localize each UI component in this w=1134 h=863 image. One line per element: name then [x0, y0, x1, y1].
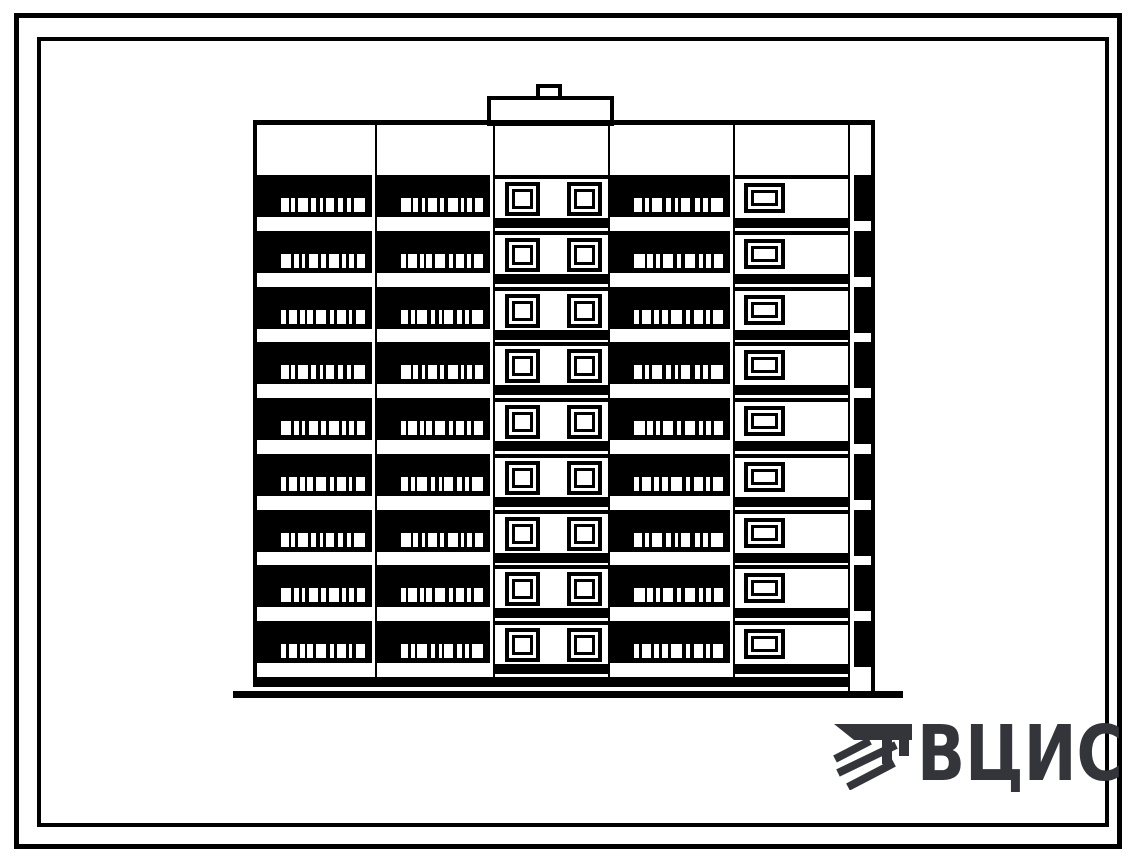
railing-dash	[435, 421, 445, 435]
railing-dash	[685, 254, 696, 268]
stairwell-window	[567, 517, 602, 551]
railing-dash	[449, 254, 453, 268]
floor-slab-band	[495, 664, 608, 674]
railing-dash	[694, 477, 703, 491]
balcony-band	[257, 342, 372, 384]
railing-dash	[465, 644, 469, 658]
window-sash	[751, 246, 778, 262]
window-sash	[751, 413, 778, 429]
floor-slab-band	[735, 274, 848, 284]
railing-dash	[329, 254, 339, 268]
floor-9-balcony-left	[257, 175, 375, 231]
railing-dash	[321, 254, 325, 268]
railing-dash	[681, 365, 690, 379]
railing-dash	[671, 310, 682, 324]
railing-dash	[448, 533, 458, 547]
railing-dash	[439, 644, 442, 658]
railing-dash	[467, 365, 472, 379]
railing-dash	[281, 254, 291, 268]
attic-band	[850, 125, 871, 175]
stairwell-window	[505, 572, 540, 606]
railing-dash	[426, 421, 432, 435]
balcony-railing	[281, 421, 365, 435]
floor-slab-band	[735, 330, 848, 340]
railing-dash	[294, 421, 299, 435]
railing-dash	[699, 421, 703, 435]
railing-dash	[401, 254, 406, 268]
balcony-railing	[634, 310, 723, 324]
floor-8-end-wall	[850, 231, 871, 287]
railing-dash	[677, 421, 681, 435]
floor-7-balcony-3	[610, 287, 733, 343]
floor-2-balcony-left	[257, 565, 375, 621]
railing-dash	[714, 254, 723, 268]
railing-dash	[711, 198, 723, 212]
balcony-railing	[401, 477, 483, 491]
balcony-band	[610, 454, 730, 496]
end-wall-panel	[854, 342, 871, 388]
railing-dash	[457, 310, 462, 324]
railing-dash	[642, 310, 651, 324]
stairwell-window	[567, 182, 602, 216]
building-elevation	[253, 120, 875, 687]
window-sash	[574, 356, 595, 376]
railing-dash	[677, 588, 681, 602]
railing-dash	[656, 254, 660, 268]
window-sash	[574, 579, 595, 599]
balcony-railing	[281, 310, 365, 324]
railing-dash	[347, 365, 351, 379]
floor-stack	[495, 175, 608, 677]
balcony-railing	[281, 533, 365, 547]
floor-2-wall	[735, 565, 848, 621]
floor-slab-line	[735, 175, 848, 179]
floor-slab-band	[735, 218, 848, 228]
floor-stack	[257, 175, 375, 677]
balcony-railing	[401, 533, 483, 547]
stairwell-window	[505, 405, 540, 439]
end-wall-panel	[854, 510, 871, 556]
railing-dash	[440, 198, 444, 212]
balcony-railing	[401, 588, 483, 602]
railing-dash	[431, 477, 436, 491]
wall-window	[744, 295, 785, 325]
railing-dash	[663, 254, 673, 268]
floor-slab-line	[735, 231, 848, 235]
floor-8-balcony-3	[610, 231, 733, 287]
window-sash	[512, 189, 533, 209]
railing-dash	[467, 254, 470, 268]
railing-dash	[413, 198, 418, 212]
section-wall	[733, 125, 848, 677]
floor-slab-band	[735, 553, 848, 563]
balcony-band	[257, 231, 372, 273]
railing-dash	[281, 421, 291, 435]
railing-dash	[426, 588, 432, 602]
railing-dash	[666, 365, 671, 379]
railing-dash	[656, 421, 660, 435]
end-wall-panel	[854, 454, 871, 500]
railing-dash	[330, 310, 334, 324]
railing-dash	[411, 310, 415, 324]
railing-dash	[281, 477, 286, 491]
floor-4-wall	[735, 454, 848, 510]
railing-dash	[439, 477, 442, 491]
balcony-band	[377, 342, 490, 384]
wall-window	[744, 573, 785, 603]
floor-8-balcony-left	[257, 231, 375, 287]
railing-dash	[645, 533, 649, 547]
stairwell-window	[567, 405, 602, 439]
railing-dash	[307, 477, 313, 491]
railing-dash	[321, 421, 325, 435]
balcony-band	[377, 398, 490, 440]
railing-dash	[294, 588, 299, 602]
railing-dash	[456, 588, 464, 602]
railing-dash	[281, 310, 286, 324]
floor-slab-band	[495, 497, 608, 507]
window-sash	[512, 412, 533, 432]
balcony-band	[377, 510, 490, 552]
railing-dash	[681, 533, 690, 547]
balcony-band	[377, 231, 490, 273]
railing-dash	[472, 644, 483, 658]
railing-dash	[357, 421, 365, 435]
stairwell-window	[567, 628, 602, 662]
railing-dash	[338, 365, 343, 379]
railing-dash	[474, 421, 483, 435]
railing-dash	[713, 644, 723, 658]
railing-dash	[329, 421, 339, 435]
attic-band	[735, 125, 848, 175]
floor-slab-band	[735, 497, 848, 507]
window-sash	[512, 635, 533, 655]
railing-dash	[686, 644, 690, 658]
railing-dash	[291, 365, 295, 379]
railing-dash	[316, 477, 326, 491]
railing-dash	[677, 254, 681, 268]
floor-slab-band	[735, 608, 848, 618]
railing-dash	[663, 421, 673, 435]
railing-dash	[686, 310, 690, 324]
railing-dash	[347, 198, 351, 212]
floor-slab-band	[495, 274, 608, 284]
end-wall-panel	[854, 175, 871, 221]
railing-dash	[431, 644, 436, 658]
railing-dash	[654, 644, 658, 658]
floor-4-stairwell	[495, 454, 608, 510]
railing-dash	[662, 644, 668, 658]
section-stairwell	[493, 125, 608, 677]
floor-slab-line	[735, 565, 848, 569]
railing-dash	[663, 588, 673, 602]
floor-stack	[610, 175, 733, 677]
railing-dash	[461, 533, 464, 547]
railing-dash	[289, 477, 297, 491]
floor-slab-line	[735, 454, 848, 458]
balcony-railing	[634, 533, 723, 547]
floor-9-end-wall	[850, 175, 871, 231]
railing-dash	[467, 588, 470, 602]
balcony-band	[610, 398, 730, 440]
floor-6-stairwell	[495, 342, 608, 398]
balcony-band	[377, 175, 490, 217]
attic-band	[377, 125, 493, 175]
railing-dash	[316, 644, 326, 658]
railing-dash	[695, 198, 700, 212]
window-sash	[751, 636, 778, 652]
railing-dash	[647, 421, 652, 435]
railing-dash	[428, 198, 437, 212]
railing-dash	[307, 310, 313, 324]
railing-dash	[431, 310, 436, 324]
railing-dash	[634, 254, 645, 268]
railing-dash	[428, 533, 437, 547]
railing-dash	[472, 310, 483, 324]
railing-dash	[337, 644, 345, 658]
window-sash	[512, 245, 533, 265]
railing-dash	[444, 644, 452, 658]
railing-dash	[326, 198, 334, 212]
railing-dash	[435, 588, 445, 602]
railing-dash	[309, 588, 318, 602]
balcony-railing	[401, 198, 483, 212]
railing-dash	[448, 365, 458, 379]
railing-dash	[307, 644, 313, 658]
end-wall-panel	[854, 231, 871, 277]
floor-stack	[850, 175, 871, 677]
floor-3-end-wall	[850, 510, 871, 566]
floor-5-wall	[735, 398, 848, 454]
window-sash	[574, 301, 595, 321]
railing-dash	[472, 477, 483, 491]
railing-dash	[444, 477, 452, 491]
railing-dash	[711, 365, 723, 379]
balcony-band	[257, 565, 372, 607]
publisher-logo: ВЦИС	[831, 720, 1134, 790]
stairwell-window	[567, 572, 602, 606]
wall-window	[744, 239, 785, 269]
railing-dash	[281, 644, 286, 658]
balcony-band	[610, 287, 730, 329]
railing-dash	[675, 198, 679, 212]
railing-dash	[444, 310, 452, 324]
stairwell-window	[505, 182, 540, 216]
balcony-railing	[281, 644, 365, 658]
floor-slab-band	[495, 441, 608, 451]
section-balcony-left	[257, 125, 375, 677]
floor-4-end-wall	[850, 454, 871, 510]
floor-3-wall	[735, 510, 848, 566]
floor-6-end-wall	[850, 342, 871, 398]
balcony-band	[610, 175, 730, 217]
railing-dash	[647, 588, 652, 602]
wall-window	[744, 183, 785, 213]
railing-dash	[291, 533, 295, 547]
stairwell-window	[567, 294, 602, 328]
railing-dash	[338, 198, 343, 212]
railing-dash	[457, 477, 462, 491]
railing-dash	[634, 198, 642, 212]
floor-8-stairwell	[495, 231, 608, 287]
railing-dash	[309, 254, 318, 268]
stairwell-window	[505, 628, 540, 662]
railing-dash	[714, 588, 723, 602]
railing-dash	[300, 310, 304, 324]
floor-7-stairwell	[495, 287, 608, 343]
floor-4-balcony-3	[610, 454, 733, 510]
balcony-railing	[401, 254, 483, 268]
wall-window	[744, 518, 785, 548]
floor-1-wall	[735, 621, 848, 677]
railing-dash	[475, 365, 483, 379]
railing-dash	[634, 421, 645, 435]
railing-dash	[413, 533, 418, 547]
floor-6-balcony-left	[257, 342, 375, 398]
balcony-railing	[634, 365, 723, 379]
window-sash	[574, 189, 595, 209]
floor-7-balcony-2	[377, 287, 493, 343]
floor-slab-line	[735, 510, 848, 514]
railing-dash	[349, 421, 354, 435]
railing-dash	[342, 254, 345, 268]
railing-dash	[422, 198, 425, 212]
balcony-railing	[401, 310, 483, 324]
attic-band	[610, 125, 733, 175]
railing-dash	[408, 588, 416, 602]
floor-9-balcony-3	[610, 175, 733, 231]
floor-stack	[735, 175, 848, 677]
window-sash	[574, 412, 595, 432]
floor-2-balcony-2	[377, 565, 493, 621]
window-sash	[574, 245, 595, 265]
railing-dash	[467, 533, 472, 547]
end-wall-panel	[854, 398, 871, 444]
balcony-railing	[634, 254, 723, 268]
floor-3-balcony-3	[610, 510, 733, 566]
railing-dash	[465, 310, 469, 324]
railing-dash	[654, 477, 658, 491]
railing-dash	[440, 365, 444, 379]
window-sash	[512, 524, 533, 544]
balcony-band	[377, 287, 490, 329]
railing-dash	[354, 198, 365, 212]
railing-dash	[475, 533, 483, 547]
floor-stack	[377, 175, 493, 677]
balcony-railing	[281, 198, 365, 212]
balcony-railing	[281, 254, 365, 268]
railing-dash	[411, 477, 415, 491]
railing-dash	[681, 198, 690, 212]
railing-dash	[349, 310, 352, 324]
balcony-railing	[281, 365, 365, 379]
railing-dash	[461, 365, 464, 379]
railing-dash	[699, 588, 703, 602]
window-sash	[512, 356, 533, 376]
section-balcony-2	[375, 125, 493, 677]
railing-dash	[467, 421, 470, 435]
attic-band	[495, 125, 608, 175]
railing-dash	[714, 421, 723, 435]
floor-7-wall	[735, 287, 848, 343]
railing-dash	[294, 254, 299, 268]
floor-3-balcony-left	[257, 510, 375, 566]
wall-window	[744, 629, 785, 659]
railing-dash	[652, 365, 663, 379]
floor-5-balcony-3	[610, 398, 733, 454]
railing-dash	[654, 310, 658, 324]
railing-dash	[417, 310, 427, 324]
balcony-band	[610, 510, 730, 552]
railing-dash	[320, 533, 323, 547]
railing-dash	[675, 365, 679, 379]
wall-window	[744, 406, 785, 436]
railing-dash	[330, 644, 334, 658]
floor-6-balcony-2	[377, 342, 493, 398]
floor-slab-line	[735, 398, 848, 402]
railing-dash	[408, 421, 416, 435]
floor-3-stairwell	[495, 510, 608, 566]
railing-dash	[311, 533, 316, 547]
railing-dash	[706, 421, 711, 435]
railing-dash	[281, 365, 289, 379]
railing-dash	[706, 477, 710, 491]
balcony-band	[257, 510, 372, 552]
railing-dash	[634, 533, 642, 547]
floor-slab-band	[735, 664, 848, 674]
railing-dash	[401, 421, 406, 435]
railing-dash	[302, 421, 305, 435]
railing-dash	[685, 588, 696, 602]
railing-dash	[417, 477, 427, 491]
stairwell-window	[505, 294, 540, 328]
railing-dash	[298, 365, 308, 379]
railing-dash	[311, 365, 316, 379]
stairwell-window	[505, 238, 540, 272]
railing-dash	[349, 644, 352, 658]
railing-dash	[354, 533, 365, 547]
floor-slab-line	[495, 454, 608, 458]
railing-dash	[401, 365, 411, 379]
railing-dash	[401, 198, 411, 212]
floor-4-balcony-left	[257, 454, 375, 510]
floor-slab-line	[495, 287, 608, 291]
railing-dash	[435, 254, 445, 268]
balcony-band	[257, 621, 372, 663]
railing-dash	[694, 644, 703, 658]
railing-dash	[703, 533, 707, 547]
floor-slab-line	[735, 342, 848, 346]
railing-dash	[356, 310, 365, 324]
railing-dash	[302, 254, 305, 268]
railing-dash	[706, 644, 710, 658]
railing-dash	[711, 533, 723, 547]
window-sash	[751, 190, 778, 206]
floor-5-stairwell	[495, 398, 608, 454]
railing-dash	[465, 477, 469, 491]
railing-dash	[281, 588, 291, 602]
building-left-edge	[253, 120, 257, 687]
floor-slab-line	[735, 287, 848, 291]
railing-dash	[326, 365, 334, 379]
window-sash	[574, 635, 595, 655]
railing-dash	[703, 198, 707, 212]
balcony-band	[377, 565, 490, 607]
railing-dash	[356, 477, 365, 491]
floor-5-balcony-2	[377, 398, 493, 454]
railing-dash	[289, 644, 297, 658]
railing-dash	[281, 198, 289, 212]
